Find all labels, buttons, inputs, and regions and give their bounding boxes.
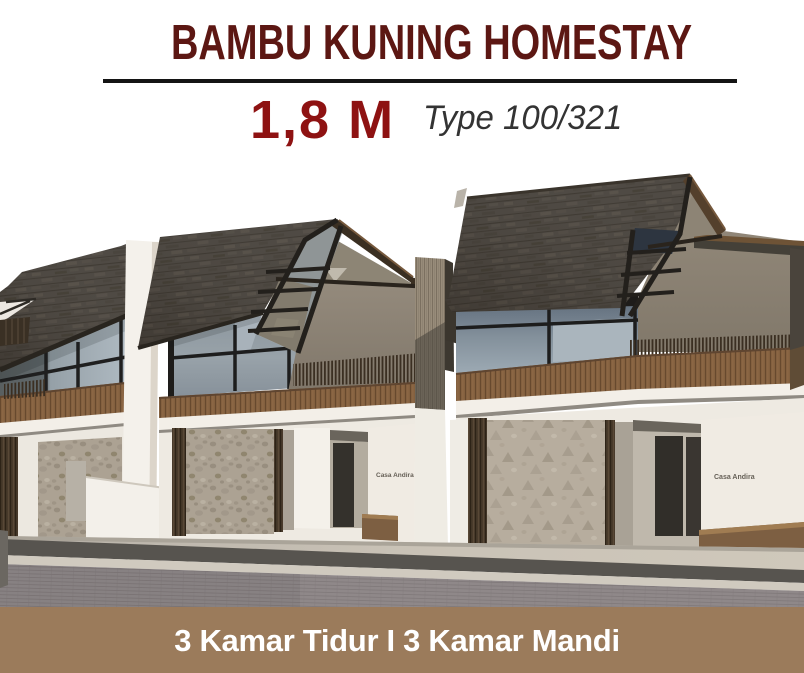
svg-text:Casa Andira: Casa Andira (714, 474, 755, 481)
svg-text:Casa Andira: Casa Andira (376, 472, 414, 479)
